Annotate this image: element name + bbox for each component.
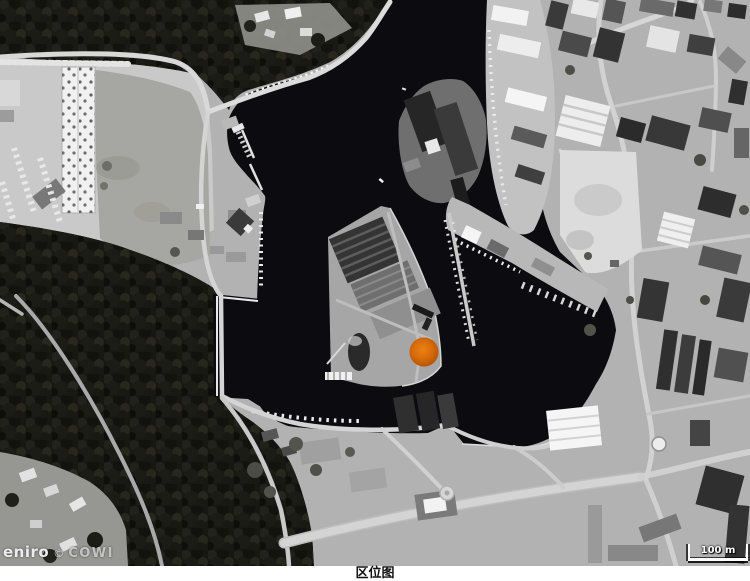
- aerial-map-image: eniro © COWI 100 m: [0, 0, 750, 566]
- map-marker: [410, 338, 439, 367]
- location-map-figure: eniro © COWI 100 m 区位图: [0, 0, 750, 581]
- aerial-map-canvas: [0, 0, 750, 566]
- figure-caption: 区位图: [355, 567, 394, 580]
- scale-bar-label: 100 m: [701, 546, 736, 556]
- map-scale-bar: 100 m: [688, 544, 748, 561]
- figure-caption-bar: 区位图: [0, 566, 750, 581]
